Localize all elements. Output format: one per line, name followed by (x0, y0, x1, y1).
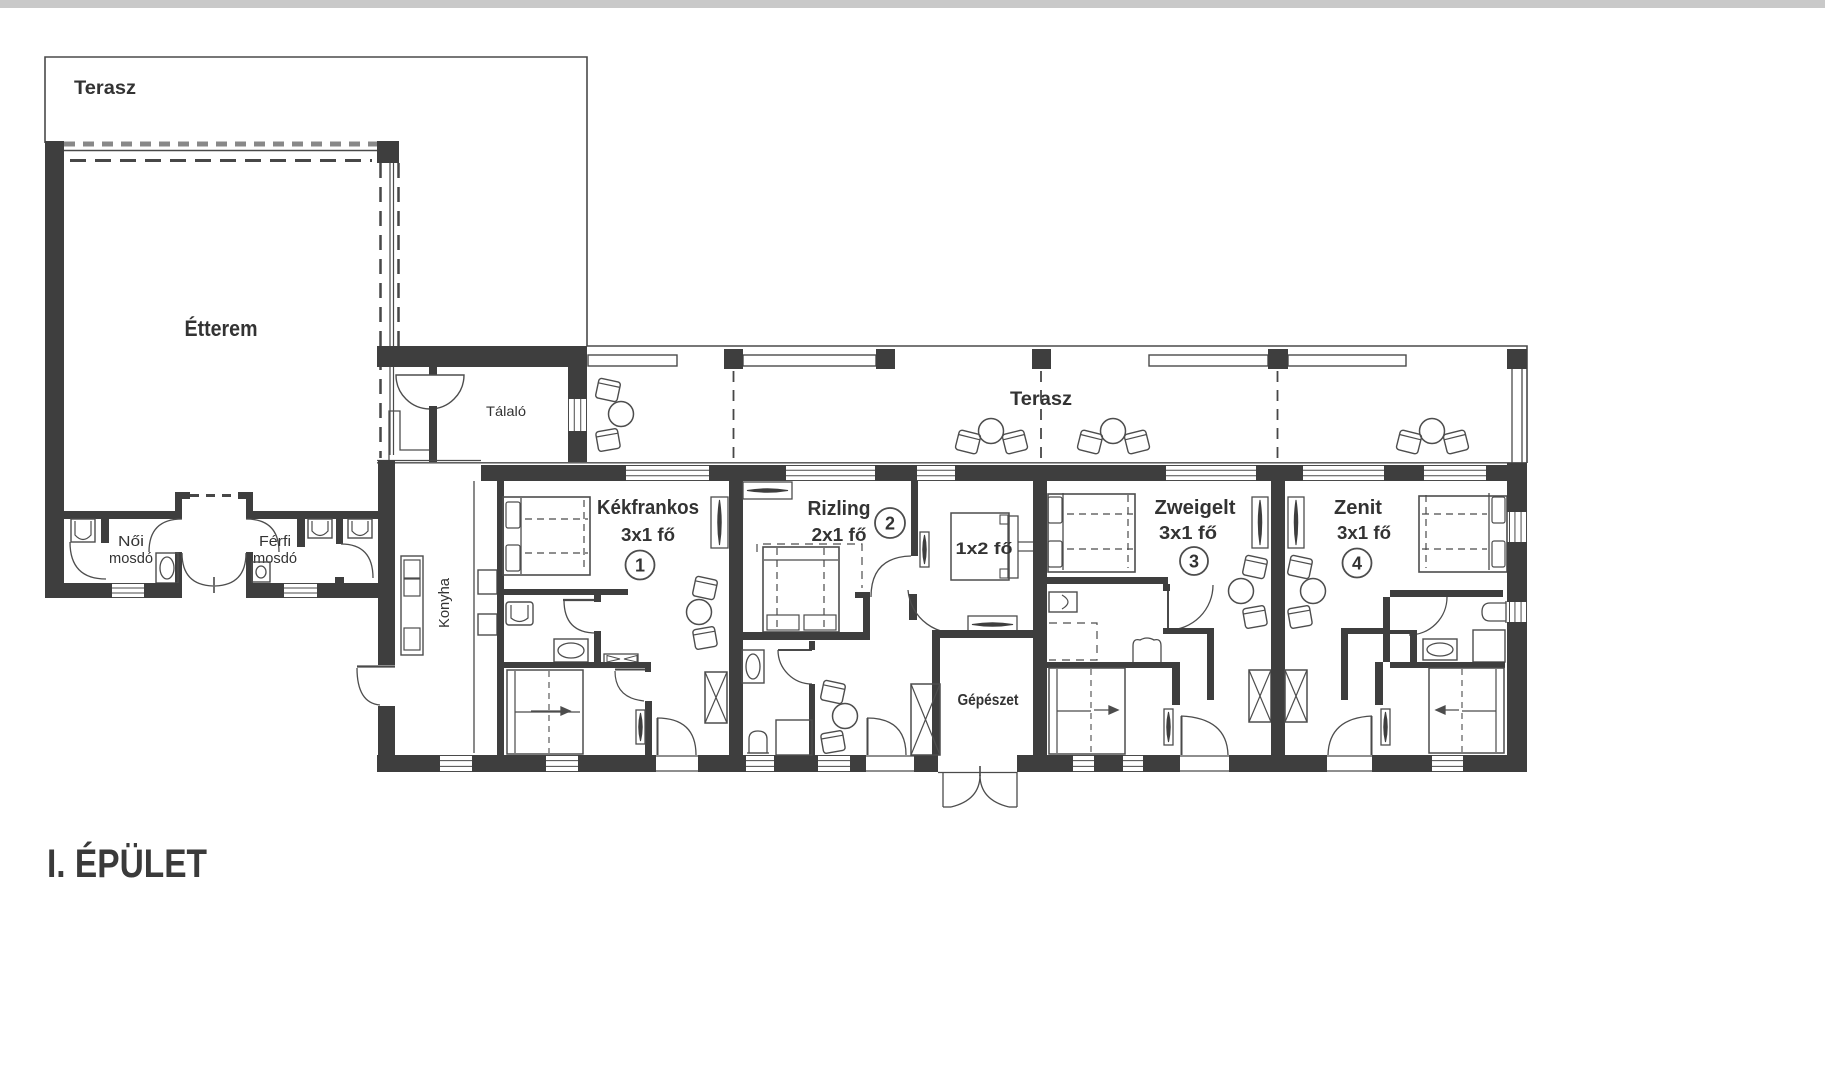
svg-text:Kékfrankos: Kékfrankos (597, 497, 699, 519)
svg-text:Gépészet: Gépészet (958, 692, 1019, 709)
svg-text:mosdó: mosdó (109, 550, 153, 567)
svg-text:Terasz: Terasz (74, 78, 136, 99)
svg-text:3: 3 (1189, 552, 1199, 572)
svg-text:1x2 fő: 1x2 fő (956, 539, 1013, 558)
svg-text:Zweigelt: Zweigelt (1155, 497, 1236, 519)
svg-text:3x1 fő: 3x1 fő (1159, 523, 1217, 543)
svg-text:4: 4 (1352, 554, 1362, 574)
svg-text:Rizling: Rizling (808, 498, 871, 520)
svg-text:1: 1 (635, 556, 645, 576)
svg-text:3x1 fő: 3x1 fő (621, 525, 675, 545)
svg-text:3x1 fő: 3x1 fő (1337, 523, 1391, 543)
svg-text:2: 2 (885, 514, 895, 534)
svg-text:Tálaló: Tálaló (486, 403, 526, 419)
svg-text:2x1 fő: 2x1 fő (812, 525, 867, 545)
svg-text:Férfi: Férfi (259, 533, 291, 550)
svg-text:Zenit: Zenit (1334, 497, 1382, 519)
svg-text:Konyha: Konyha (436, 577, 453, 628)
svg-text:mosdó: mosdó (253, 550, 297, 567)
svg-text:Női: Női (118, 533, 144, 550)
svg-text:I. ÉPÜLET: I. ÉPÜLET (47, 841, 207, 886)
svg-text:Étterem: Étterem (185, 316, 258, 341)
